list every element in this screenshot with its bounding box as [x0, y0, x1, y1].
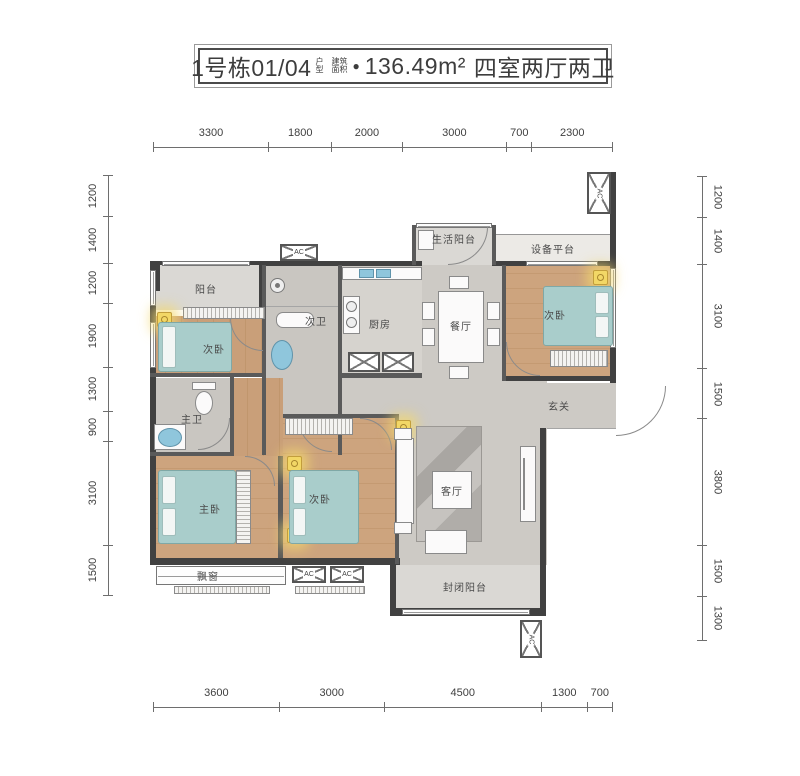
dim-segment: 1300 — [541, 702, 587, 712]
dim-segment: 900 — [103, 411, 113, 442]
dim-segment: 1300 — [697, 596, 707, 640]
dining-chair — [422, 302, 435, 320]
dim-label: 2000 — [355, 127, 379, 139]
title-area-label-small: 建筑面积 — [331, 58, 347, 74]
room-label-master-bedroom: 主卧 — [180, 500, 240, 516]
dim-segment: 1900 — [103, 303, 113, 367]
dim-label: 1500 — [711, 381, 723, 405]
interior-wall — [230, 377, 234, 456]
room-label-entry-hall: 玄关 — [502, 397, 616, 413]
dim-segment: 3800 — [697, 418, 707, 545]
bed-pillow — [595, 316, 609, 338]
title-bar: 1号栋01/04 户型 建筑面积 ● 136.49m² 四室两厅两卫 — [194, 44, 612, 88]
floorplan-page: { "title": { "building_unit": "1号栋01/04"… — [0, 0, 800, 776]
dim-label: 1900 — [87, 323, 99, 347]
dining-chair — [487, 328, 500, 346]
entry-door — [616, 386, 666, 436]
dim-segment: 1400 — [697, 217, 707, 264]
ac-label: AC — [303, 571, 315, 578]
room-label-kitchen: 厨房 — [358, 315, 402, 331]
stove-burner — [346, 317, 357, 328]
dim-segment: 3100 — [103, 441, 113, 544]
private-hall-floor — [232, 378, 283, 456]
toilet-tank — [192, 382, 216, 390]
dimension-line-top: 33001800200030007002300 — [153, 142, 613, 152]
dim-segment: 1400 — [103, 216, 113, 263]
dimension-line-bottom: 3600300045001300700 — [153, 702, 613, 712]
dining-chair — [449, 366, 469, 379]
title-layout-summary: 四室两厅两卫 — [474, 49, 615, 83]
dim-label: 900 — [87, 417, 99, 435]
bath-sink — [158, 428, 182, 447]
dim-segment: 2300 — [531, 142, 612, 152]
dim-segment: 1200 — [697, 176, 707, 217]
dim-label: 1500 — [711, 559, 723, 583]
bed-pillow — [162, 476, 176, 504]
sofa-side-table — [394, 522, 412, 534]
dim-segment: 1300 — [103, 367, 113, 411]
dim-segment: 700 — [506, 142, 531, 152]
bedroom-top-right-top-window — [526, 261, 598, 266]
bed-pillow — [293, 508, 306, 536]
bed-pillow — [162, 508, 176, 536]
interior-wall — [262, 265, 266, 455]
dim-label: 1800 — [288, 127, 312, 139]
wall-segment — [150, 261, 156, 562]
armchair — [425, 530, 467, 554]
dim-segment: 700 — [587, 702, 612, 712]
dim-segment: 1500 — [697, 368, 707, 419]
dim-segment: 1200 — [103, 263, 113, 304]
dim-segment: 2000 — [331, 142, 401, 152]
dim-label: 1200 — [87, 271, 99, 295]
room-label-equipment-platform: 设备平台 — [492, 240, 614, 256]
kitchen-sink-left — [359, 269, 374, 278]
dim-label: 3000 — [320, 687, 344, 699]
balcony-window — [162, 261, 250, 266]
ceiling-light — [593, 270, 608, 285]
dim-label: 700 — [510, 127, 528, 139]
bath-basin — [271, 340, 293, 370]
wall-segment — [540, 428, 546, 616]
dim-segment: 3100 — [697, 264, 707, 368]
room-label-bedroom-top-left: 次卧 — [186, 340, 242, 356]
room-label-balcony: 阳台 — [168, 280, 244, 296]
title-unit-type-line2: 型 — [315, 66, 323, 74]
ac-label: AC — [595, 187, 602, 199]
window-sill — [295, 586, 365, 594]
room-label-bath-secondary: 次卫 — [294, 312, 338, 328]
sofa — [396, 438, 414, 524]
interior-wall — [150, 373, 264, 377]
interior-wall — [278, 456, 283, 558]
dim-label: 1300 — [711, 606, 723, 630]
dim-segment: 1500 — [697, 545, 707, 596]
title-bar-inner: 1号栋01/04 户型 建筑面积 ● 136.49m² 四室两厅两卫 — [198, 48, 608, 84]
interior-wall — [150, 452, 234, 456]
ac-label: AC — [527, 633, 534, 645]
dim-label: 3300 — [199, 127, 223, 139]
dimension-line-left: 1200140012001900130090031001500 — [103, 175, 113, 596]
dim-label: 1300 — [87, 377, 99, 401]
bath-divider-line — [266, 306, 338, 307]
kitchen-sink-right — [376, 269, 391, 278]
dim-label: 1200 — [87, 184, 99, 208]
dim-segment: 4500 — [384, 702, 541, 712]
room-label-bay-window: 飘窗 — [178, 567, 238, 583]
ac-unit-bottom-1: AC — [292, 566, 326, 583]
dim-segment: 3000 — [402, 142, 507, 152]
room-label-bedroom-bottom: 次卧 — [290, 490, 350, 506]
title-bullet: ● — [352, 59, 359, 73]
balcony-side-window — [150, 270, 156, 306]
dim-label: 1500 — [87, 558, 99, 582]
dim-segment: 1200 — [103, 175, 113, 216]
wall-segment — [150, 558, 400, 565]
bed-pillow — [162, 326, 176, 368]
dim-segment: 3300 — [153, 142, 268, 152]
bed-pillow — [595, 292, 609, 314]
room-label-living-room: 客厅 — [432, 471, 472, 509]
stove-burner — [346, 301, 357, 312]
dim-label: 4500 — [450, 687, 474, 699]
dim-segment: 1800 — [268, 142, 331, 152]
room-label-enclosed-balcony: 封闭阳台 — [390, 578, 540, 594]
dim-label: 3000 — [442, 127, 466, 139]
bedroom-top-left-window — [150, 322, 156, 368]
ac-unit-bottom-right: AC — [520, 620, 542, 658]
dim-label: 1400 — [711, 229, 723, 253]
ac-label: AC — [293, 249, 305, 256]
dim-label: 1400 — [87, 227, 99, 251]
shower-head-icon — [275, 283, 280, 288]
room-label-dining-room: 餐厅 — [438, 317, 484, 333]
dim-label: 3600 — [204, 687, 228, 699]
dining-chair — [487, 302, 500, 320]
wall-segment — [502, 376, 616, 381]
fridge — [348, 352, 380, 372]
wardrobe — [285, 418, 353, 435]
dim-label: 3800 — [711, 470, 723, 494]
title-building-unit: 1号栋01/04 — [191, 49, 311, 83]
ac-unit-bottom-2: AC — [330, 566, 364, 583]
bay-window-sill — [174, 586, 270, 594]
ac-unit-top-right: AC — [587, 172, 611, 214]
dim-label: 700 — [591, 687, 609, 699]
dining-chair — [422, 328, 435, 346]
dim-label: 1200 — [711, 185, 723, 209]
sofa-side-table — [394, 428, 412, 440]
dim-segment: 3000 — [279, 702, 384, 712]
dimension-line-right: 1200140031001500380015001300 — [697, 176, 707, 641]
dim-label: 1300 — [552, 687, 576, 699]
dim-segment: 3600 — [153, 702, 279, 712]
wardrobe — [550, 350, 608, 367]
entry-step-line — [547, 428, 616, 429]
tv-screen — [523, 458, 525, 510]
room-label-master-bath: 主卫 — [162, 410, 222, 426]
ac-label: AC — [341, 571, 353, 578]
dim-segment: 1500 — [103, 545, 113, 595]
dim-label: 3100 — [87, 481, 99, 505]
floor-plan: AC AC AC AC AC — [150, 170, 670, 662]
interior-wall — [502, 265, 506, 381]
ceiling-light — [287, 456, 302, 471]
kitchen-cabinet — [382, 352, 414, 372]
title-area-label-line2: 面积 — [331, 66, 347, 74]
ac-unit-top-middle: AC — [280, 244, 318, 261]
title-unit-type-small: 户型 — [315, 58, 323, 74]
dining-chair — [449, 276, 469, 289]
dim-label: 2300 — [560, 127, 584, 139]
title-area-value: 136.49m² — [365, 53, 466, 80]
room-label-service-balcony: 生活阳台 — [414, 230, 494, 246]
room-label-bedroom-top-right: 次卧 — [530, 306, 580, 322]
interior-wall — [342, 373, 422, 378]
enclosed-balcony-window — [402, 609, 530, 615]
dim-label: 3100 — [711, 304, 723, 328]
